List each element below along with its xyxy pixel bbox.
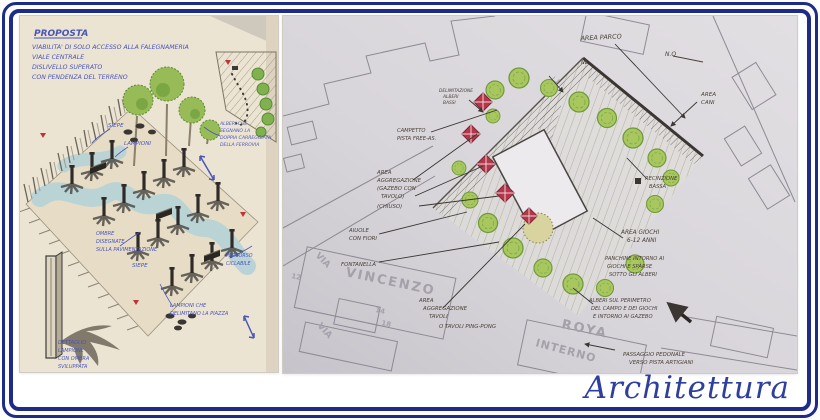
label-recinzione: RECINZIONE [645,176,678,182]
svg-text:ALBERI: ALBERI [442,94,459,100]
label-alberi-perimetro: ALBERI SUL PERIMETRO [588,298,651,304]
svg-text:SVILUPPATA: SVILUPPATA [58,364,88,370]
label-panchine: PANCHINE INTORNO AI [605,256,665,262]
label-percorso: PERCORSO [226,253,253,259]
svg-text:DOPPIA CARREGGIATA: DOPPIA CARREGGIATA [220,135,271,141]
svg-text:DELIMITANO LA PIAZZA: DELIMITANO LA PIAZZA [170,311,229,317]
svg-text:6-12 ANNI: 6-12 ANNI [627,238,657,244]
svg-text:AGGREGAZIONE: AGGREGAZIONE [422,306,468,312]
brand-title: Architettura [585,371,790,405]
label-ombre: OMBRE [96,231,115,237]
svg-text:SEGNANO LA: SEGNANO LA [220,128,250,134]
label-corner-mark: NE [581,60,589,66]
note-line: VIALE CENTRALE [32,54,84,61]
label-lampioni: LAMPIONI [124,141,151,147]
label-area-cani: AREA [700,92,716,98]
svg-text:CON FIORI: CON FIORI [349,236,377,242]
svg-text:O TAVOLI PING-PONG: O TAVOLI PING-PONG [439,324,496,330]
svg-text:CON OMBRA: CON OMBRA [58,356,90,362]
svg-text:TAVOLO): TAVOLO) [381,194,404,200]
right-plan-panel: VIA VIA VINCENZO ROYA INTERNO 12 14 18 A… [283,16,797,373]
label-delimitazione: DELIMITAZIONE [439,88,473,94]
svg-text:TAVOLI: TAVOLI [429,314,448,320]
svg-text:CANI: CANI [701,100,715,106]
label-siepe-top: SIEPE [108,123,124,129]
label-compass: N.O [665,51,676,58]
svg-text:SULLA PAVIMENTAZIONE: SULLA PAVIMENTAZIONE [96,247,158,253]
svg-text:(GAZEBO CON: (GAZEBO CON [377,186,416,192]
svg-text:PISTA FREE-AS.: PISTA FREE-AS. [397,136,436,142]
label-aiuole: AIUOLE [348,228,369,234]
svg-text:DELLA FERROVIA: DELLA FERROVIA [220,142,259,148]
svg-text:CICLABILE: CICLABILE [226,261,251,267]
svg-text:(CHIUSO): (CHIUSO) [377,204,402,210]
note-line: CON PENDENZA DEL TERRENO [32,74,128,81]
label-aggregazione: AREA [376,170,392,176]
svg-text:E INTORNO AI GAZEBO: E INTORNO AI GAZEBO [593,314,653,320]
svg-text:AGGREGAZIONE: AGGREGAZIONE [376,178,422,184]
label-fontanella: FONTANELLA [341,262,376,268]
note-line: VIABILITA' DI SOLO ACCESSO ALLA FALEGNAM… [32,44,189,51]
svg-text:GIOCHI E SPARSE: GIOCHI E SPARSE [607,264,653,270]
plan-symbol [635,178,641,184]
left-sketch-panel: PROPOSTA VIABILITA' DI SOLO ACCESSO ALLA… [20,16,278,372]
svg-text:SOTTO GLI ALBERI: SOTTO GLI ALBERI [609,272,657,278]
label-area-giochi: AREA GIOCHI [620,230,660,236]
label-campetto: CAMPETTO [397,128,425,134]
label-dettaglio: DETTAGLIO [58,340,86,346]
note-line: DISLIVELLO SUPERATO [32,64,102,71]
svg-text:VERSO PISTA ARTIGIANI: VERSO PISTA ARTIGIANI [629,360,693,366]
right-plan-drawing: VIA VIA VINCENZO ROYA INTERNO 12 14 18 A… [283,16,797,373]
svg-text:BASSA: BASSA [649,184,667,190]
architecture-board: PROPOSTA VIABILITA' DI SOLO ACCESSO ALLA… [0,0,820,420]
label-tavoli: AREA [418,298,434,304]
svg-text:DISEGNATE: DISEGNATE [96,239,125,245]
label-passaggio: PASSAGGIO PEDONALE [623,352,686,358]
svg-text:DEL CAMPO E DEI GIOCHI: DEL CAMPO E DEI GIOCHI [591,306,658,312]
label-siepe-bottom: SIEPE [132,263,148,269]
svg-text:BASSI: BASSI [443,100,456,106]
left-sketch-drawing: PROPOSTA VIABILITA' DI SOLO ACCESSO ALLA… [20,16,278,372]
label-lampioni-piazza: LAMPIONI CHE [170,303,207,309]
label-alberi: ALBERI CHE [219,121,247,127]
svg-text:LAMPIONE: LAMPIONE [58,348,85,354]
